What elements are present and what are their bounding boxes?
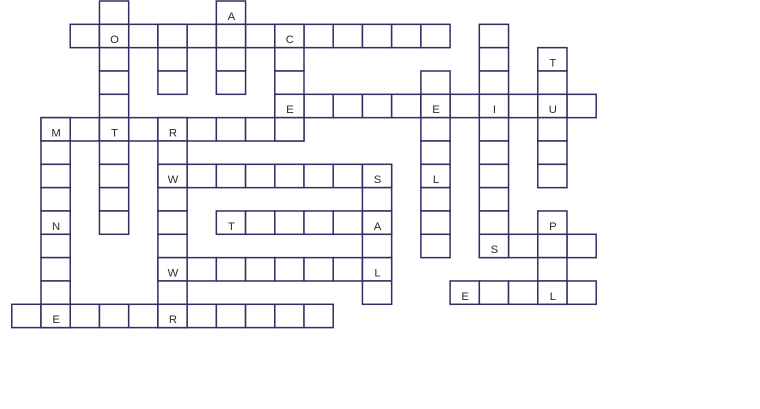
svg-text:W: W xyxy=(168,174,179,186)
svg-text:E: E xyxy=(52,314,60,326)
svg-text:T: T xyxy=(549,57,556,69)
svg-text:T: T xyxy=(111,127,118,139)
svg-text:M: M xyxy=(51,127,60,139)
svg-text:N: N xyxy=(52,221,60,233)
svg-text:A: A xyxy=(228,11,236,23)
svg-text:O: O xyxy=(110,34,119,46)
svg-text:U: U xyxy=(549,104,557,116)
svg-text:T: T xyxy=(228,221,235,233)
svg-text:S: S xyxy=(374,174,382,186)
svg-text:E: E xyxy=(286,104,294,116)
svg-text:R: R xyxy=(169,127,177,139)
svg-text:A: A xyxy=(374,221,382,233)
svg-text:I: I xyxy=(493,104,496,116)
svg-text:E: E xyxy=(461,291,469,303)
svg-text:R: R xyxy=(169,314,177,326)
svg-text:S: S xyxy=(491,244,499,256)
svg-text:E: E xyxy=(432,104,440,116)
svg-text:P: P xyxy=(549,221,557,233)
svg-text:C: C xyxy=(286,34,294,46)
svg-text:W: W xyxy=(168,267,179,279)
svg-text:L: L xyxy=(550,291,556,303)
svg-text:L: L xyxy=(374,267,380,279)
svg-text:L: L xyxy=(433,174,439,186)
